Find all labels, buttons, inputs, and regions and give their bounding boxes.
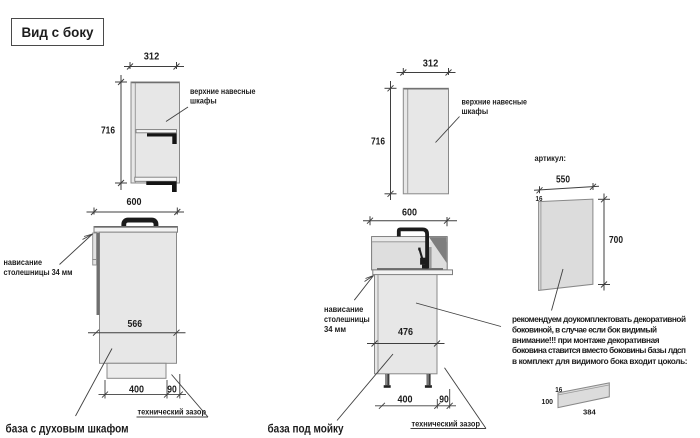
svg-text:700: 700 — [609, 235, 623, 246]
svg-text:34 мм: 34 мм — [324, 324, 346, 334]
svg-text:в комплект для видимого бока в: в комплект для видимого бока входит цоко… — [512, 356, 688, 366]
svg-text:боковина ставится вместо боков: боковина ставится вместо боковины базы л… — [512, 345, 686, 355]
svg-text:рекомендуем доукомплектовать д: рекомендуем доукомплектовать декоративно… — [512, 315, 686, 324]
svg-text:100: 100 — [542, 397, 554, 406]
svg-text:технический зазор: технический зазор — [138, 407, 207, 417]
svg-text:90: 90 — [167, 384, 177, 395]
svg-text:384: 384 — [583, 407, 597, 416]
svg-text:столешницы: столешницы — [324, 314, 370, 324]
svg-text:нависание: нависание — [324, 304, 364, 314]
svg-text:верхние навесные: верхние навесные — [190, 86, 256, 96]
svg-text:столешницы 34 мм: столешницы 34 мм — [4, 267, 73, 277]
svg-text:артикул:: артикул: — [535, 153, 567, 163]
svg-text:716: 716 — [371, 137, 385, 148]
svg-text:600: 600 — [127, 197, 142, 208]
svg-text:312: 312 — [423, 59, 439, 70]
svg-text:нависание: нависание — [4, 257, 43, 267]
svg-text:400: 400 — [129, 384, 144, 395]
svg-text:550: 550 — [556, 175, 570, 186]
svg-text:боковиной, в случае если бок в: боковиной, в случае если бок видимый — [512, 324, 657, 334]
svg-text:база с духовым шкафом: база с духовым шкафом — [6, 424, 129, 436]
svg-text:600: 600 — [402, 207, 417, 218]
svg-text:шкафы: шкафы — [462, 106, 489, 116]
svg-text:400: 400 — [398, 394, 413, 405]
svg-text:566: 566 — [128, 319, 143, 330]
svg-text:база под мойку: база под мойку — [268, 424, 345, 436]
svg-text:технический зазор: технический зазор — [412, 418, 481, 428]
svg-text:90: 90 — [439, 394, 449, 405]
svg-text:16: 16 — [555, 385, 562, 394]
svg-text:верхние навесные: верхние навесные — [462, 96, 528, 106]
svg-text:Вид с боку: Вид с боку — [22, 25, 94, 40]
svg-text:312: 312 — [144, 52, 160, 63]
svg-text:шкафы: шкафы — [190, 96, 217, 106]
svg-text:476: 476 — [398, 327, 413, 338]
svg-text:716: 716 — [101, 125, 115, 136]
svg-text:внимание!!! при монтаже декора: внимание!!! при монтаже декоративная — [512, 336, 660, 345]
